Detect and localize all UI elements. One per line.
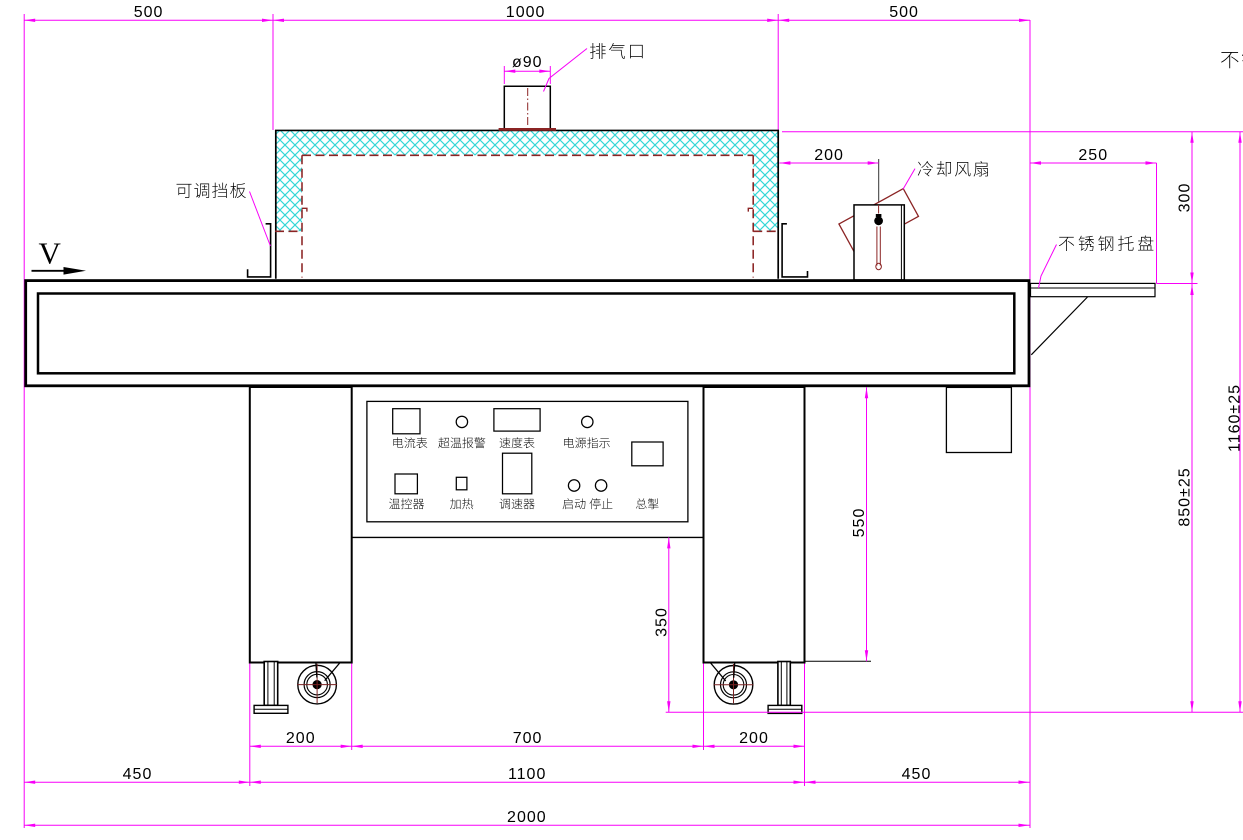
svg-text:500: 500	[889, 4, 919, 21]
svg-text:550: 550	[851, 508, 868, 538]
svg-text:300: 300	[1177, 183, 1194, 213]
svg-text:450: 450	[123, 766, 153, 783]
svg-text:200: 200	[814, 147, 844, 164]
svg-text:450: 450	[902, 766, 932, 783]
svg-text:250: 250	[1078, 147, 1108, 164]
svg-text:2000: 2000	[507, 809, 547, 826]
svg-text:200: 200	[286, 730, 316, 747]
svg-text:350: 350	[654, 607, 671, 637]
svg-text:700: 700	[513, 730, 543, 747]
svg-text:500: 500	[134, 4, 164, 21]
svg-text:200: 200	[739, 730, 769, 747]
svg-text:1100: 1100	[508, 766, 546, 783]
svg-text:850±25: 850±25	[1177, 467, 1194, 526]
svg-text:1160±25: 1160±25	[1226, 384, 1243, 452]
svg-text:ø90: ø90	[512, 54, 543, 71]
svg-text:V: V	[39, 236, 62, 271]
svg-text:1000: 1000	[506, 4, 546, 21]
